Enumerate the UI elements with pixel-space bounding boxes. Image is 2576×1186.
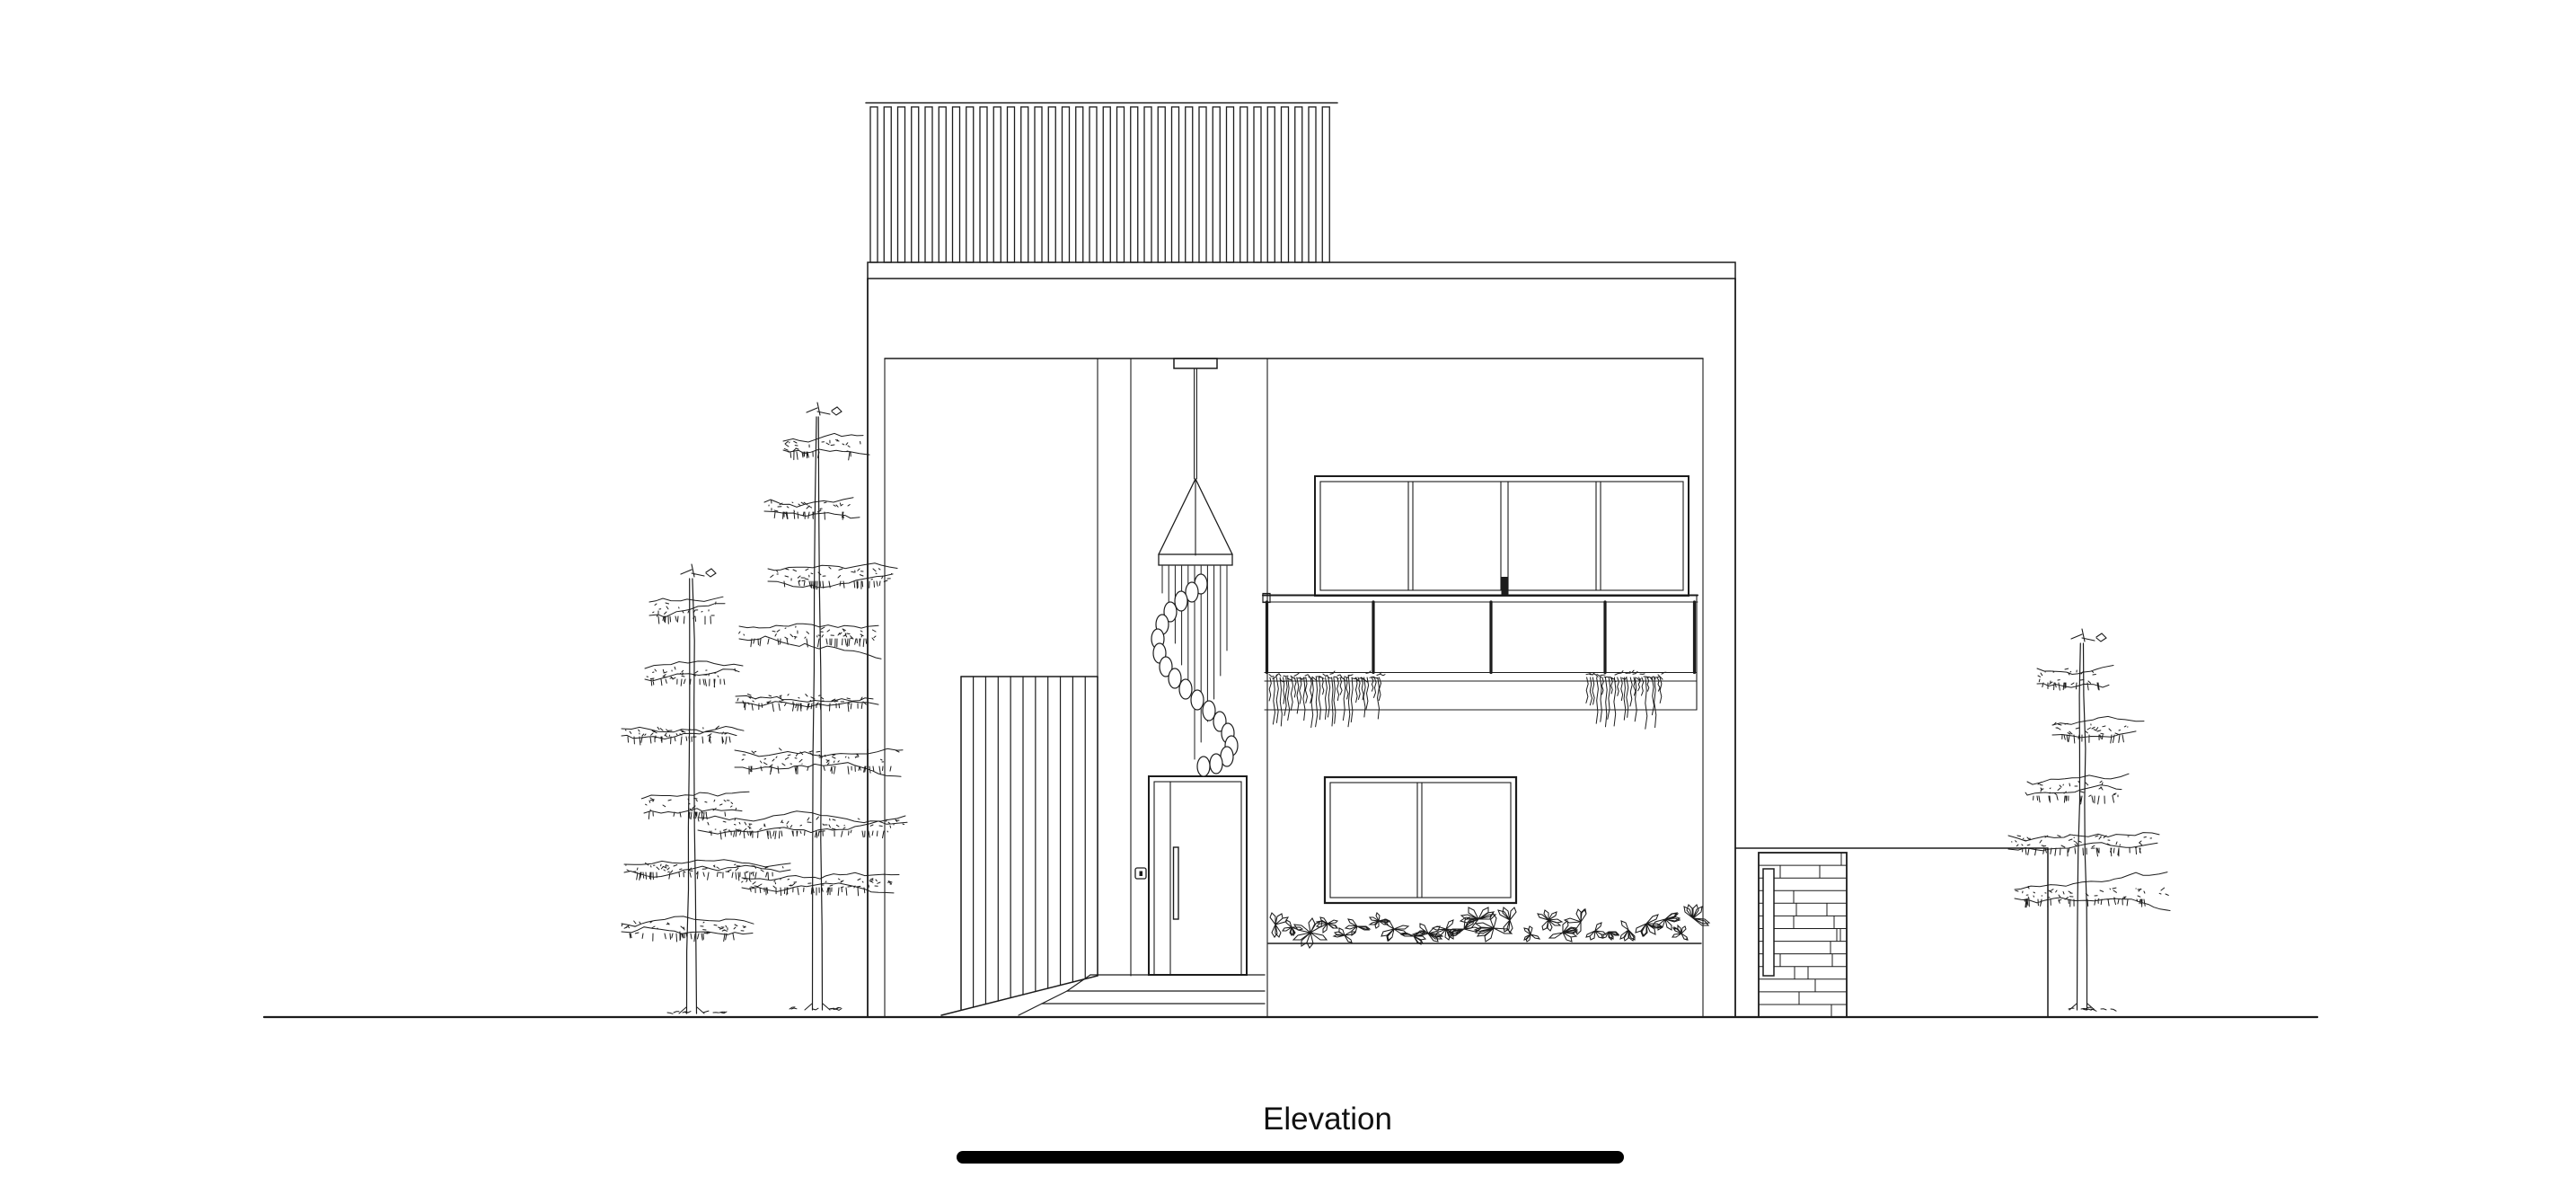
pine-tree-right	[2008, 629, 2170, 1011]
shrub-bed	[1268, 905, 1709, 948]
scale-bar	[957, 1151, 1624, 1164]
window-handle	[1502, 577, 1509, 595]
drawing-title: Elevation	[1193, 1100, 1462, 1139]
pine-tree-left-small	[622, 564, 790, 1013]
planter-vines-right	[1586, 670, 1666, 729]
pendant-ceiling-plate	[1174, 358, 1217, 368]
upper-window-group	[1315, 476, 1689, 596]
front-door	[1135, 776, 1247, 975]
planter-vines-left	[1269, 671, 1385, 728]
door-handle	[1174, 847, 1179, 919]
building-outline	[866, 103, 1735, 1018]
pillar-board	[1763, 869, 1774, 976]
entry-steps	[1019, 975, 1265, 1015]
brick-pillar	[1759, 853, 1847, 1017]
elevation-drawing-page: Elevation	[0, 0, 2576, 1186]
pendant-ring	[1159, 554, 1232, 565]
roof-louver-screen	[870, 107, 1329, 262]
privacy-slat-screen	[941, 677, 1098, 1015]
elevation-lineart	[0, 0, 2576, 1186]
lower-window	[1325, 777, 1516, 903]
balcony-railing	[1263, 594, 1698, 711]
